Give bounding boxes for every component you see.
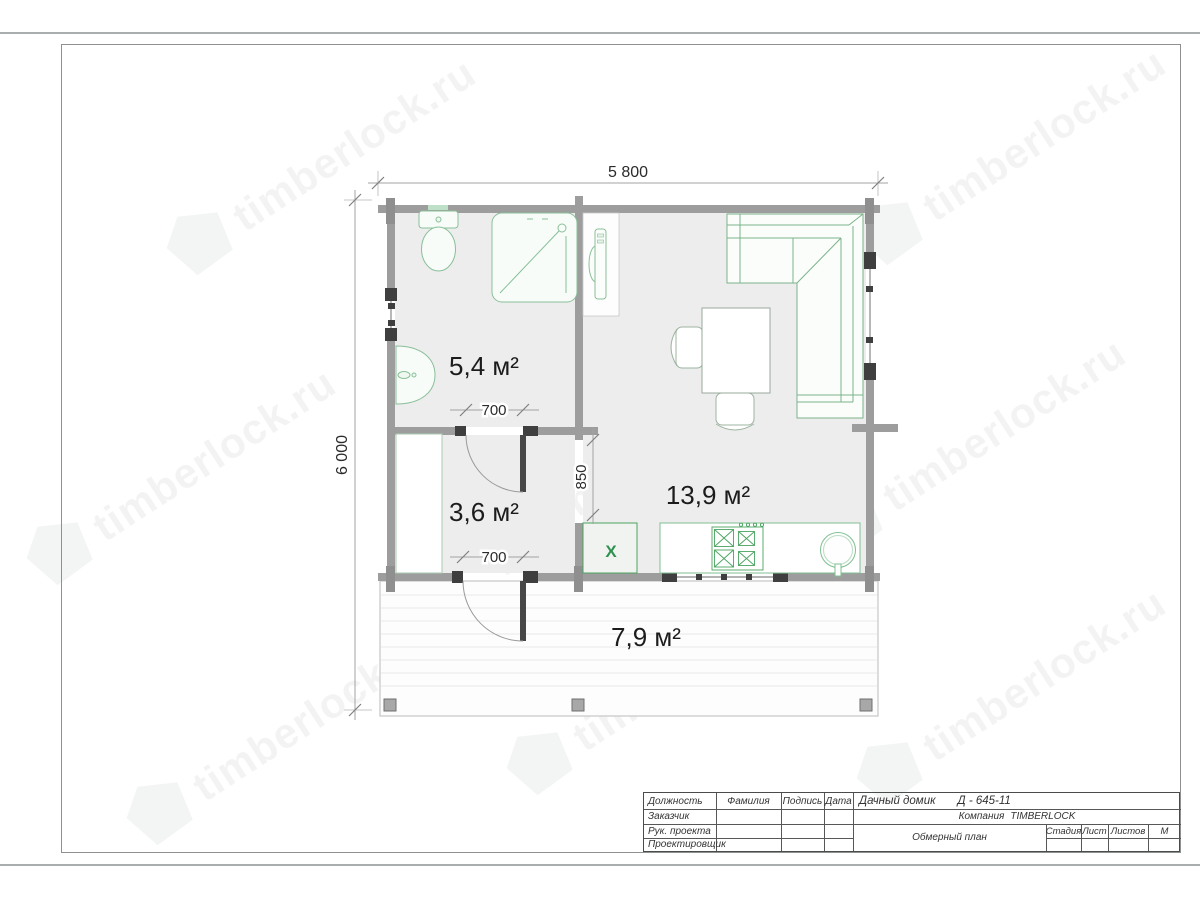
tb-row-label: Заказчик bbox=[644, 809, 720, 824]
dim-bath-door-label: 700 bbox=[481, 402, 506, 419]
terrace-post bbox=[860, 699, 872, 711]
bathroom-wall-right bbox=[538, 427, 598, 435]
dim-kitchen-opening-label: 850 bbox=[573, 464, 590, 489]
shower-cabin bbox=[492, 213, 577, 302]
chair bbox=[716, 393, 754, 425]
corner-post bbox=[386, 566, 395, 592]
floor-plan-drawing: X bbox=[0, 0, 1200, 900]
hallway-area-label: 3,6 м² bbox=[449, 497, 519, 527]
sheet-label: Лист bbox=[1081, 824, 1108, 838]
kitchen bbox=[660, 523, 860, 576]
corner-post bbox=[865, 198, 874, 224]
corner-post bbox=[574, 566, 583, 592]
project-title-cell: Дачный домик Д - 645-11 bbox=[859, 793, 1181, 809]
project-code: Д - 645-11 bbox=[958, 795, 1011, 807]
title-block-line bbox=[1046, 838, 1181, 839]
bathroom-area-label: 5,4 м² bbox=[449, 351, 519, 381]
corner-post bbox=[865, 566, 874, 592]
corner-post bbox=[386, 198, 395, 224]
scale-label: М bbox=[1148, 824, 1181, 838]
terrace-area-label: 7,9 м² bbox=[611, 622, 681, 652]
toilet bbox=[419, 205, 458, 271]
tb-col-label: Подпись bbox=[781, 793, 824, 809]
appliance-x: X bbox=[583, 523, 637, 573]
right-wall-log-tie bbox=[852, 424, 898, 432]
right-wall-lower bbox=[866, 380, 874, 588]
dimension-width: 5 800 bbox=[368, 164, 888, 196]
company-name: TIMBERLOCK bbox=[1010, 811, 1075, 822]
title-block: Должность Заказчик Рук. проекта Проектир… bbox=[643, 792, 1180, 852]
left-wall-lower bbox=[387, 341, 395, 581]
dining-table bbox=[702, 308, 770, 393]
stage-label: Стадия bbox=[1046, 824, 1081, 838]
chair bbox=[676, 327, 703, 368]
hallway-closet bbox=[396, 434, 442, 573]
terrace-post bbox=[572, 699, 584, 711]
tb-row-label: Рук. проекта bbox=[644, 824, 720, 838]
tb-row-label: Проектировщик bbox=[644, 838, 720, 851]
tb-col-label: Фамилия bbox=[716, 793, 781, 809]
appliance-x-label: X bbox=[605, 542, 617, 561]
terrace-post bbox=[384, 699, 396, 711]
project-title: Дачный домик bbox=[859, 795, 936, 807]
company-label: Компания bbox=[959, 811, 1005, 822]
sheets-label: Листов bbox=[1108, 824, 1148, 838]
living-area-label: 13,9 м² bbox=[666, 480, 751, 510]
bottom-wall-mid bbox=[523, 573, 662, 581]
tb-col-label: Дата bbox=[824, 793, 853, 809]
drawing-name-cell: Обмерный план bbox=[853, 824, 1046, 851]
dimension-height: 6 000 bbox=[334, 190, 372, 720]
dim-terrace-door-label: 700 bbox=[481, 549, 506, 566]
dim-width-label: 5 800 bbox=[608, 164, 648, 181]
company-cell: Компания TIMBERLOCK bbox=[853, 809, 1181, 824]
tb-row-label: Должность bbox=[644, 793, 720, 809]
dim-height-label: 6 000 bbox=[334, 435, 351, 475]
